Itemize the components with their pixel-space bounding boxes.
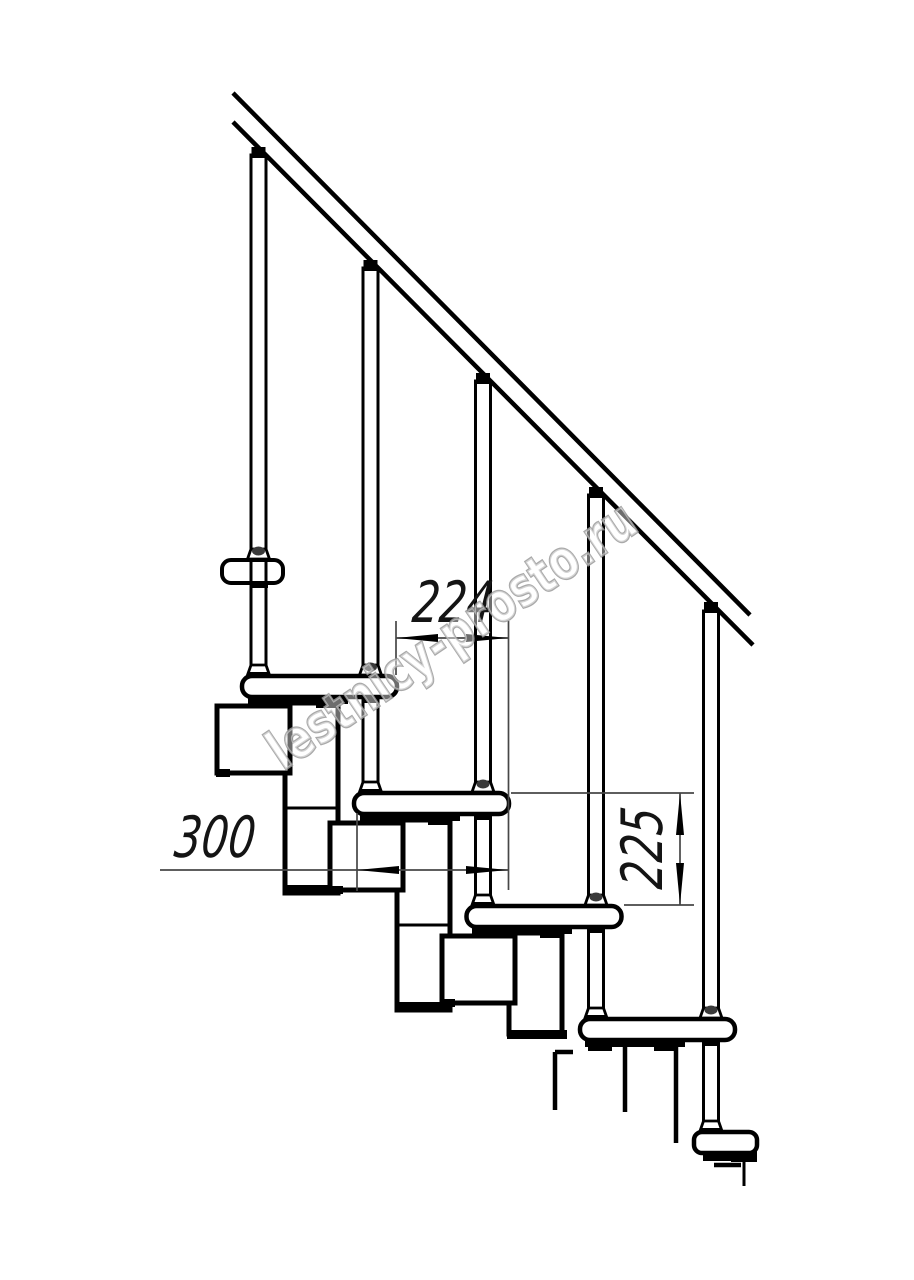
arrow-down-icon: [676, 863, 684, 905]
baluster: [704, 611, 719, 1132]
module-box: [442, 936, 515, 1003]
handrail-bottom-edge: [233, 122, 753, 645]
tread: [467, 906, 622, 927]
module-box-pad: [441, 999, 455, 1007]
arrow-up-icon: [676, 793, 684, 835]
module-box-pad: [329, 886, 343, 894]
tread: [354, 793, 509, 814]
technical-drawing-page: 224 300 225 lestnicy-prosto.ru: [0, 0, 914, 1280]
module-column-base: [507, 1030, 567, 1039]
dimension-label-300: 300: [172, 804, 260, 871]
baluster: [251, 155, 266, 676]
tread-last: [694, 1132, 757, 1153]
floor-bracket: [714, 1161, 744, 1186]
handrail: [233, 93, 753, 645]
dimension-label-225: 225: [609, 804, 676, 892]
module-box-pad: [216, 769, 230, 777]
tread: [580, 1019, 735, 1040]
module-box: [330, 823, 403, 890]
staircase-drawing: 224 300 225 lestnicy-prosto.ru: [0, 0, 914, 1280]
